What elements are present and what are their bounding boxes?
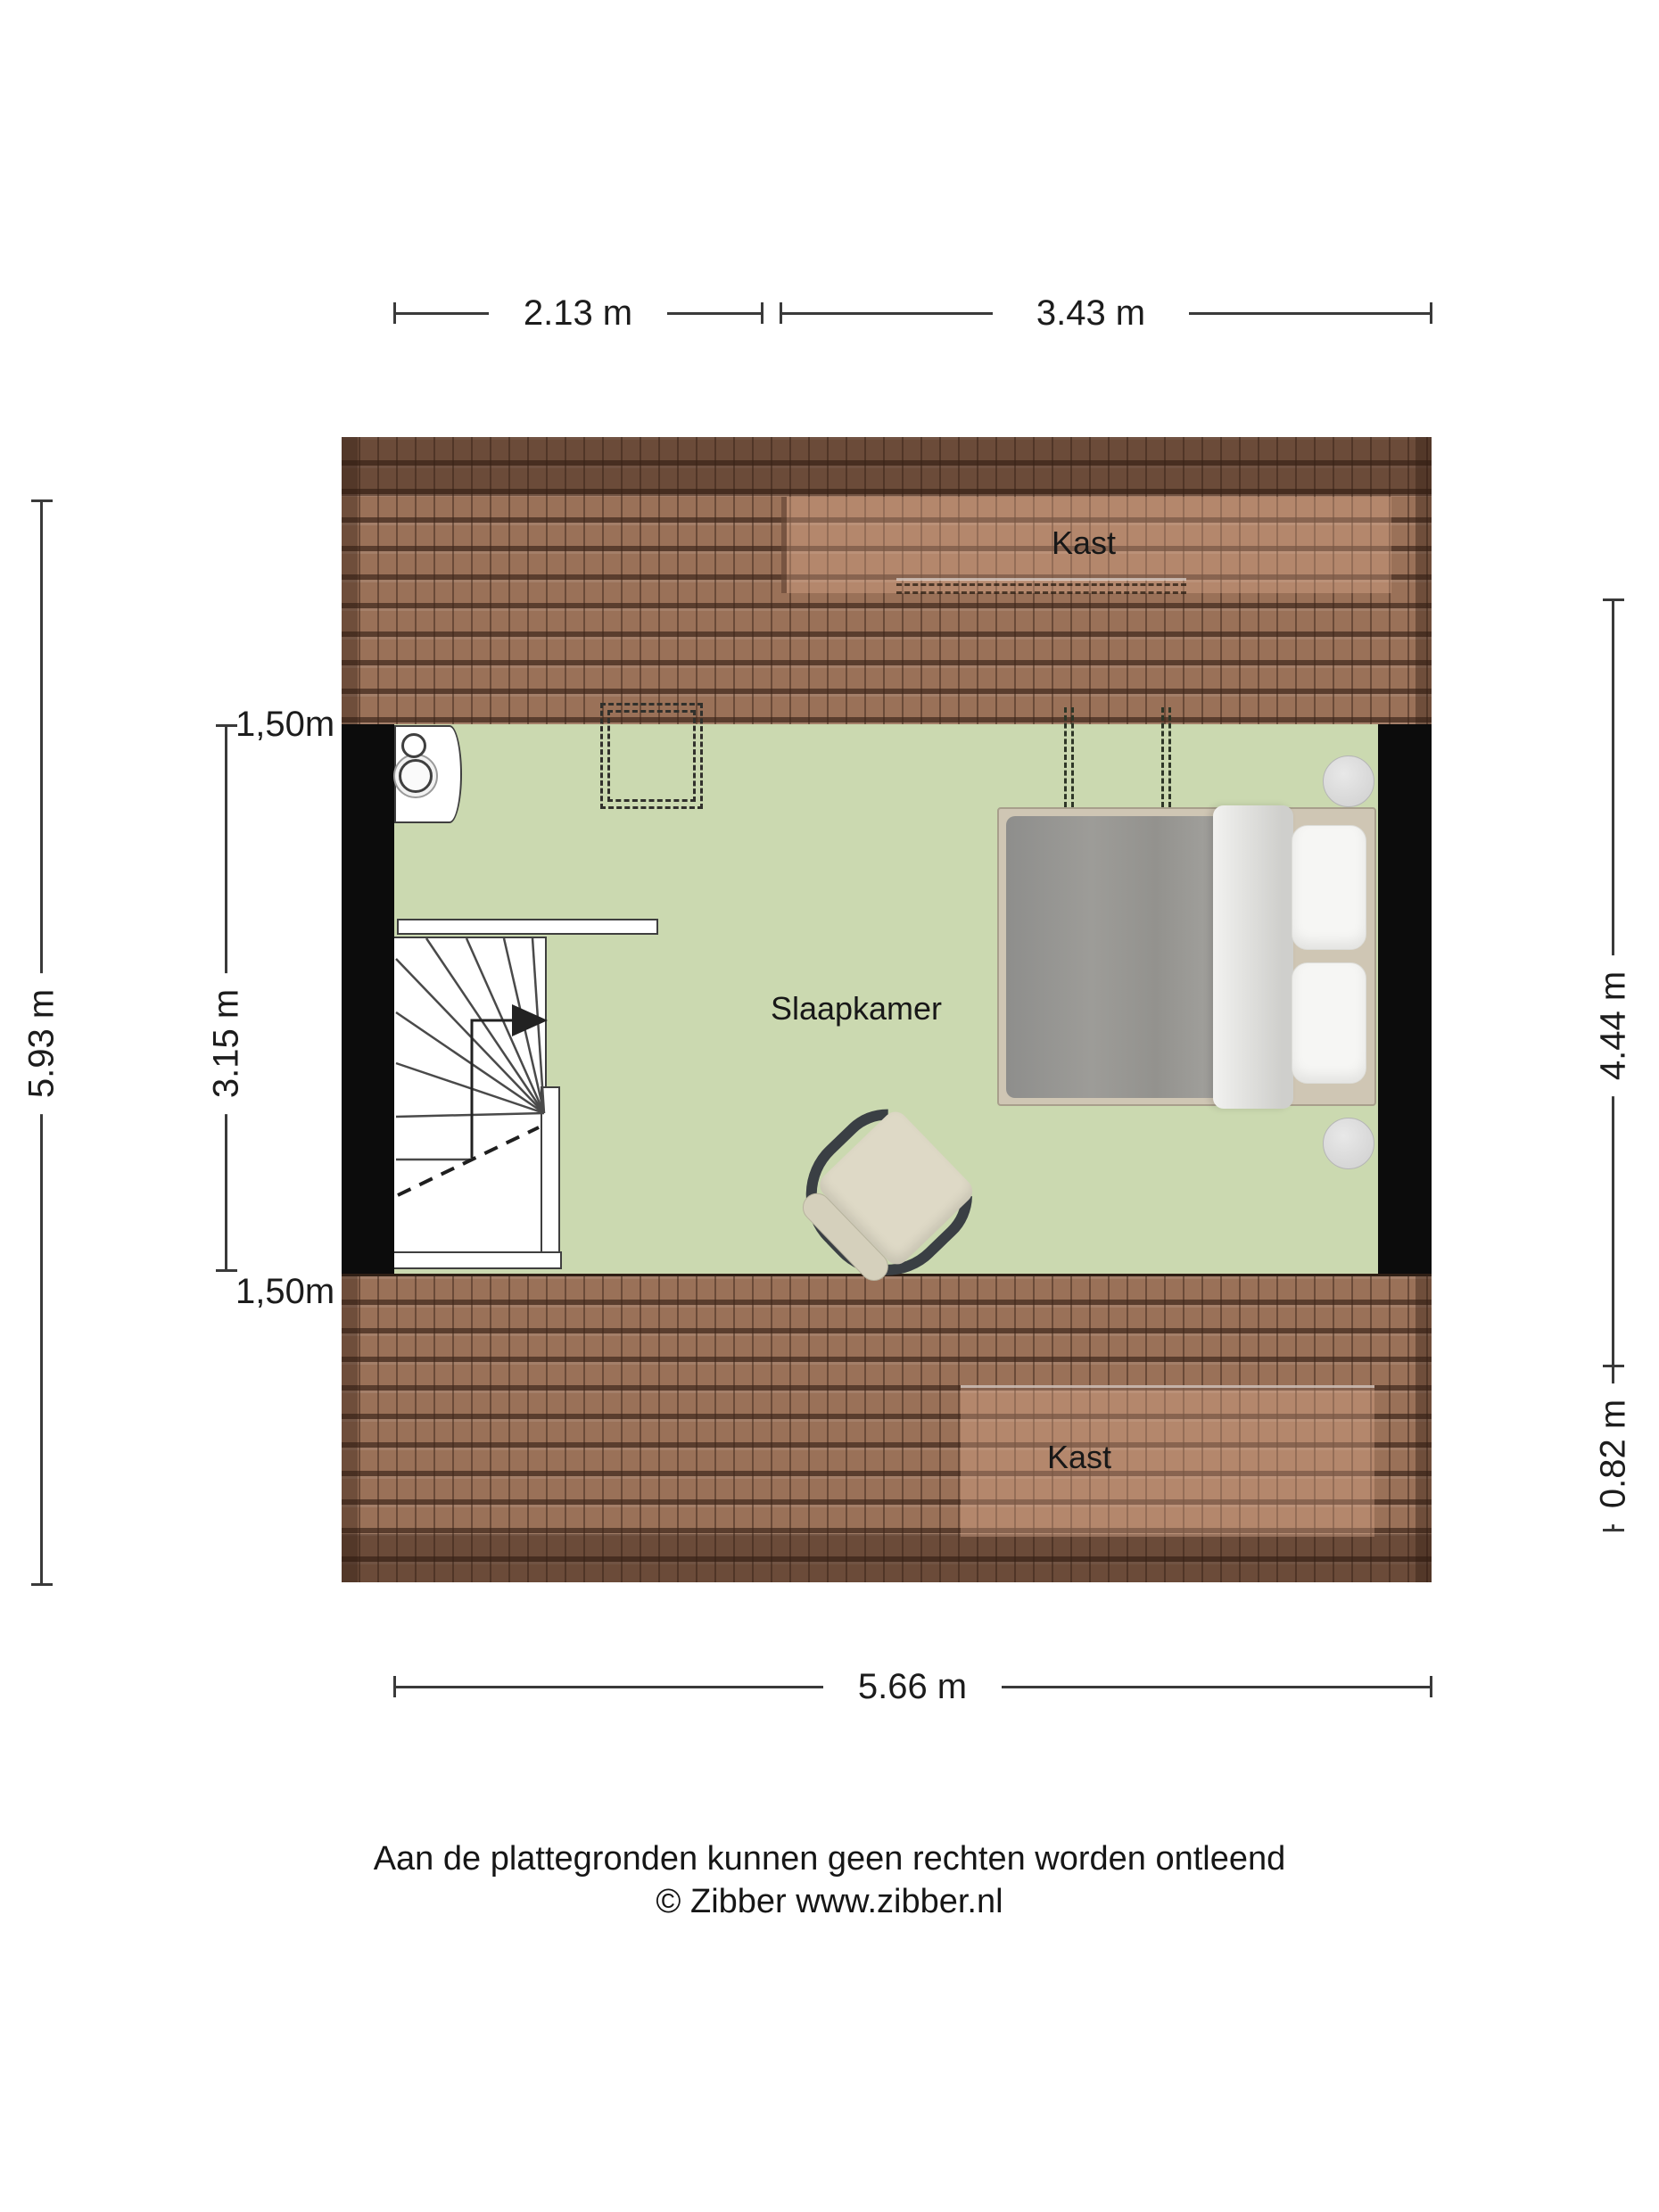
dashed-roof-line-4 xyxy=(1168,707,1171,807)
footer-disclaimer: Aan de plattegronden kunnen geen rechten… xyxy=(0,1837,1659,1880)
closet-label-top: Kast xyxy=(950,524,1217,562)
washing-machine-dial xyxy=(401,733,426,758)
bed-sheet xyxy=(1213,805,1293,1109)
bed-pillow-left xyxy=(1292,825,1366,950)
dim-label-top-right: 3.43 m xyxy=(993,290,1189,336)
footer-copyright: © Zibber www.zibber.nl xyxy=(0,1880,1659,1923)
bed xyxy=(997,807,1376,1106)
dashed-roof-line-1 xyxy=(1064,707,1067,807)
washing-machine-drum xyxy=(399,759,433,793)
dashed-dormer-outline-inner xyxy=(607,710,696,802)
bed-pillow-right xyxy=(1292,962,1366,1084)
dim-tick xyxy=(1430,302,1432,324)
dim-tick xyxy=(31,1583,53,1586)
closet-top-edge-highlight xyxy=(896,578,1186,581)
dim-tick xyxy=(1603,1529,1624,1531)
dim-tick xyxy=(393,1676,396,1697)
dim-label-left-outer: 5.93 m xyxy=(19,973,66,1114)
dashed-roof-line-2 xyxy=(1071,707,1074,807)
roof-edge-right xyxy=(1416,437,1432,724)
dim-tick xyxy=(1603,1365,1624,1367)
roof-band-bottom xyxy=(342,1274,1432,1582)
stairs-landing-wall xyxy=(397,919,658,935)
nightstand-top xyxy=(1323,755,1374,807)
footer: Aan de plattegronden kunnen geen rechten… xyxy=(0,1837,1659,1923)
dashed-roof-line-3 xyxy=(1161,707,1164,807)
knee-wall-label-top: 1,50m xyxy=(235,705,334,745)
roof-eave-bottom xyxy=(342,1534,1432,1582)
dim-tick xyxy=(216,724,237,727)
closet-top-dashed-line-2 xyxy=(896,591,1186,594)
roof-edge-right-bottom xyxy=(1416,1276,1432,1582)
roof-edge-left xyxy=(342,437,358,724)
stairs xyxy=(394,937,547,1268)
nightstand-bottom xyxy=(1323,1118,1374,1169)
dim-tick xyxy=(1430,1676,1432,1697)
floorplan-page: Kast Kast xyxy=(0,0,1659,2212)
dim-label-right-closet: 0.82 m xyxy=(1590,1383,1638,1524)
dim-label-right-room: 4.44 m xyxy=(1590,955,1638,1096)
wall-right xyxy=(1378,724,1432,1274)
roof-eave-top xyxy=(342,437,1432,496)
stairs-bottom-edge xyxy=(394,1251,562,1269)
dim-tick xyxy=(761,302,763,324)
dim-tick xyxy=(1603,598,1624,601)
dim-tick xyxy=(393,302,396,324)
knee-wall-label-bottom: 1,50m xyxy=(235,1272,334,1312)
bed-duvet xyxy=(1006,816,1220,1098)
dim-label-top-left: 2.13 m xyxy=(489,290,667,336)
roof-band-top xyxy=(342,437,1432,727)
wall-left xyxy=(342,724,394,1274)
dim-tick xyxy=(31,499,53,502)
dim-tick xyxy=(216,1269,237,1272)
dim-label-bottom: 5.66 m xyxy=(823,1663,1002,1710)
dim-tick xyxy=(780,302,782,324)
dim-label-left-inner: 3.15 m xyxy=(203,973,251,1114)
closet-label-bottom: Kast xyxy=(945,1439,1213,1476)
stairs-railing xyxy=(541,1086,560,1269)
bedroom-label: Slaapkamer xyxy=(678,990,1035,1028)
roof-edge-left-bottom xyxy=(342,1276,358,1582)
closet-top-dashed-line-1 xyxy=(896,583,1186,586)
